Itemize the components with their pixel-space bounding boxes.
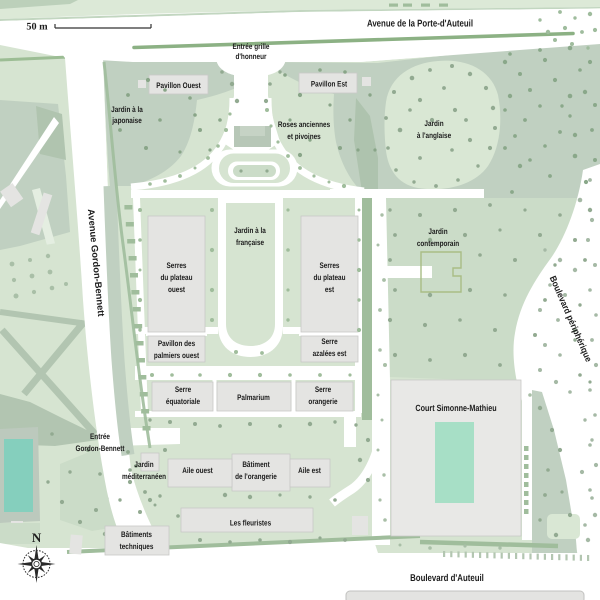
svg-text:orangerie: orangerie xyxy=(308,397,338,406)
svg-text:Jardin à la: Jardin à la xyxy=(234,226,266,235)
svg-text:Serres: Serres xyxy=(167,261,187,270)
svg-text:à l'anglaise: à l'anglaise xyxy=(417,131,452,140)
svg-text:Pavillon Est: Pavillon Est xyxy=(311,80,348,89)
svg-text:Gordon-Bennett: Gordon-Bennett xyxy=(75,444,124,453)
svg-text:de l'orangerie: de l'orangerie xyxy=(235,472,277,481)
svg-text:Pavillon des: Pavillon des xyxy=(158,339,196,348)
svg-text:Serre: Serre xyxy=(175,385,192,394)
svg-text:Boulevard d'Auteuil: Boulevard d'Auteuil xyxy=(410,573,484,584)
svg-text:japonaise: japonaise xyxy=(111,116,142,125)
svg-text:et pivoines: et pivoines xyxy=(287,132,321,141)
svg-text:française: française xyxy=(236,238,265,247)
svg-text:Serres: Serres xyxy=(320,261,340,270)
svg-text:Entrée: Entrée xyxy=(90,432,110,441)
svg-text:techniques: techniques xyxy=(120,542,154,551)
svg-text:Court Simonne-Mathieu: Court Simonne-Mathieu xyxy=(415,403,496,413)
svg-text:Jardin à la: Jardin à la xyxy=(111,105,143,114)
svg-text:Palmarium: Palmarium xyxy=(237,393,270,402)
svg-text:Serre: Serre xyxy=(321,337,338,346)
svg-text:Roses anciennes: Roses anciennes xyxy=(278,120,331,129)
svg-text:équatoriale: équatoriale xyxy=(166,397,201,406)
svg-text:Avenue de la Porte-d'Auteuil: Avenue de la Porte-d'Auteuil xyxy=(367,19,473,30)
svg-text:Bâtiments: Bâtiments xyxy=(121,530,152,539)
svg-text:Aile est: Aile est xyxy=(298,466,321,475)
svg-text:Entrée grille: Entrée grille xyxy=(233,42,270,51)
svg-text:méditerranéen: méditerranéen xyxy=(122,472,166,481)
svg-text:Bâtiment: Bâtiment xyxy=(242,460,270,469)
svg-text:50 m: 50 m xyxy=(26,22,48,33)
svg-text:Jardin: Jardin xyxy=(428,227,447,236)
svg-text:est: est xyxy=(325,285,335,294)
svg-text:azalées est: azalées est xyxy=(313,349,347,358)
svg-text:ouest: ouest xyxy=(168,285,185,294)
svg-text:d'honneur: d'honneur xyxy=(235,52,266,61)
svg-text:Pavillon Ouest: Pavillon Ouest xyxy=(156,81,201,90)
svg-text:du plateau: du plateau xyxy=(160,273,192,282)
svg-text:Aile ouest: Aile ouest xyxy=(182,466,213,475)
svg-text:Jardin: Jardin xyxy=(134,460,153,469)
svg-text:Serre: Serre xyxy=(315,385,332,394)
svg-text:contemporain: contemporain xyxy=(417,239,459,248)
svg-text:du plateau: du plateau xyxy=(313,273,345,282)
svg-text:N: N xyxy=(32,530,42,545)
svg-text:Les fleuristes: Les fleuristes xyxy=(230,519,272,528)
svg-text:palmiers ouest: palmiers ouest xyxy=(154,351,199,360)
svg-text:Jardin: Jardin xyxy=(424,119,443,128)
